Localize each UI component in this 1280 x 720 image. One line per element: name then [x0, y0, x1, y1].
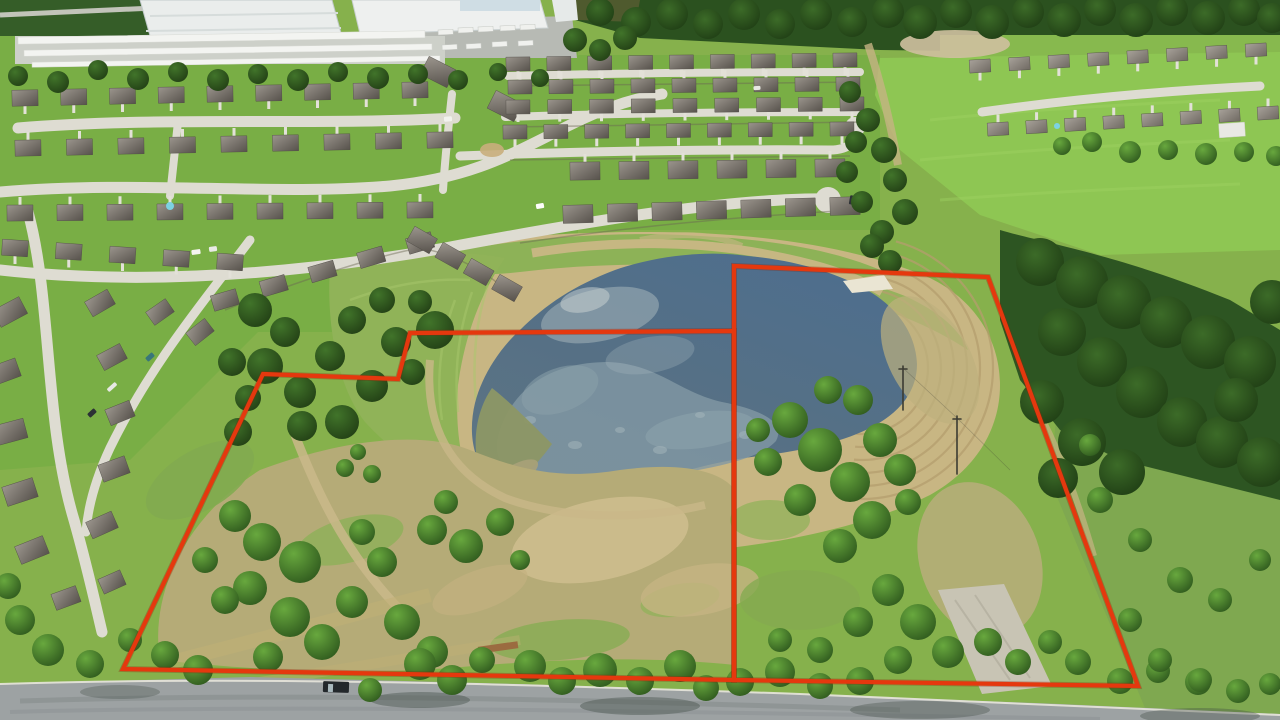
truck-trailer — [458, 27, 473, 33]
house-roof — [107, 204, 133, 220]
tree — [287, 69, 309, 91]
tree — [531, 69, 549, 87]
vehicle — [753, 86, 760, 90]
house-roof — [619, 161, 649, 179]
tree — [486, 508, 514, 536]
tree — [883, 168, 907, 192]
house-roof — [1219, 108, 1241, 122]
tree — [830, 462, 870, 502]
tree — [127, 68, 149, 90]
tree — [823, 529, 857, 563]
house-roof — [548, 100, 572, 114]
truck-trailer — [478, 26, 493, 32]
warehouse-blue-roof — [460, 0, 540, 11]
tree — [693, 9, 723, 39]
house-roof — [1048, 54, 1070, 68]
house-roof — [563, 205, 594, 224]
house-roof — [357, 202, 383, 218]
house-roof — [427, 132, 453, 149]
house-roof — [756, 98, 780, 112]
tree — [872, 574, 904, 606]
house-roof — [833, 53, 857, 67]
house-roof — [109, 88, 135, 105]
tree — [192, 547, 218, 573]
house-roof — [607, 203, 638, 222]
tree — [1099, 449, 1145, 495]
tree — [358, 678, 382, 702]
tree — [807, 637, 833, 663]
tree — [1208, 588, 1232, 612]
house-roof — [57, 205, 83, 221]
house-roof — [55, 243, 82, 261]
tree — [1148, 648, 1172, 672]
tree — [367, 547, 397, 577]
house-roof — [109, 246, 136, 264]
truck-trailer — [500, 25, 515, 31]
tree — [884, 646, 912, 674]
tree — [284, 376, 316, 408]
house-roof — [307, 203, 333, 219]
tree — [798, 428, 842, 472]
house-roof — [1245, 43, 1267, 57]
tree — [270, 317, 300, 347]
tree — [211, 586, 239, 614]
tree — [218, 348, 246, 376]
tree — [975, 5, 1009, 39]
tree — [417, 515, 447, 545]
tree — [88, 60, 108, 80]
tree — [363, 465, 381, 483]
house-roof — [707, 123, 731, 137]
tree — [583, 653, 617, 687]
tree — [408, 64, 428, 84]
tree — [746, 418, 770, 442]
house-roof — [503, 125, 527, 139]
house-roof — [1257, 106, 1279, 120]
tree — [1005, 649, 1031, 675]
tree — [1259, 673, 1280, 695]
house-roof — [324, 134, 350, 151]
tree — [860, 234, 884, 258]
house-roof — [304, 84, 330, 101]
tree — [932, 636, 964, 668]
tree — [270, 597, 310, 637]
aerial-scene-canvas — [0, 0, 1280, 720]
truck-trailer — [518, 40, 533, 46]
tree — [349, 519, 375, 545]
tree — [1047, 3, 1081, 37]
house-roof — [547, 56, 571, 70]
tree — [1188, 668, 1212, 692]
house-roof — [631, 99, 655, 113]
house-roof — [795, 77, 819, 91]
house-roof — [666, 123, 690, 137]
tree — [5, 605, 35, 635]
tree — [168, 62, 188, 82]
tree — [336, 459, 354, 477]
tree — [338, 306, 366, 334]
house-roof — [66, 139, 92, 156]
tree — [974, 628, 1002, 656]
house-roof — [751, 54, 775, 68]
house-roof — [1141, 113, 1163, 127]
tree — [563, 28, 587, 52]
house-roof — [570, 162, 600, 180]
tree — [489, 63, 507, 81]
house-roof — [1064, 117, 1086, 131]
house-roof — [748, 123, 772, 137]
tree — [8, 66, 28, 86]
house-roof — [589, 99, 613, 113]
house-roof — [696, 201, 727, 220]
house-roof — [969, 59, 991, 73]
house-roof — [118, 138, 144, 155]
tree — [843, 607, 873, 637]
house-roof — [668, 161, 698, 179]
tree — [510, 550, 530, 570]
tree — [76, 650, 104, 678]
tree — [843, 385, 873, 415]
aerial-property-photo — [0, 0, 1280, 720]
tree — [253, 642, 283, 672]
house-roof — [631, 79, 655, 93]
house-roof — [1127, 50, 1149, 64]
house-roof — [669, 55, 693, 69]
tree — [47, 71, 69, 93]
tree — [1038, 630, 1062, 654]
tree — [807, 673, 833, 699]
tree — [1167, 567, 1193, 593]
house-roof — [1009, 57, 1031, 71]
tree — [151, 641, 179, 669]
tree — [613, 26, 637, 50]
tree — [1065, 649, 1091, 675]
house-roof — [1026, 120, 1048, 134]
house-roof — [544, 125, 568, 139]
house-roof — [7, 205, 33, 221]
house-roof — [61, 89, 87, 106]
house-roof — [1087, 52, 1109, 66]
house-roof — [506, 57, 530, 71]
tree — [437, 665, 467, 695]
truck-trailer — [442, 44, 457, 50]
tree — [328, 62, 348, 82]
tree — [1038, 308, 1086, 356]
house-roof — [407, 202, 433, 218]
house-roof — [221, 136, 247, 153]
tree — [243, 523, 281, 561]
tree — [434, 490, 458, 514]
tree — [367, 67, 389, 89]
house-roof — [158, 87, 184, 104]
house-roof — [549, 80, 573, 94]
house-roof — [673, 98, 697, 112]
tree — [1226, 679, 1250, 703]
tree — [287, 411, 317, 441]
tree — [589, 39, 611, 61]
house-roof — [1180, 110, 1202, 124]
house-roof — [741, 199, 772, 218]
vehicle — [444, 116, 452, 122]
tree — [884, 454, 916, 486]
tree — [900, 604, 936, 640]
tree — [315, 341, 345, 371]
house-roof — [508, 80, 532, 94]
tree — [1079, 434, 1101, 456]
tree — [1119, 141, 1141, 163]
house-roof — [766, 159, 796, 177]
tree — [469, 647, 495, 673]
tree — [32, 634, 64, 666]
house-roof — [163, 250, 190, 268]
backyard-pool — [1054, 123, 1060, 129]
tree — [765, 9, 795, 39]
house-roof — [272, 135, 298, 152]
tree — [248, 64, 268, 84]
tree — [1119, 3, 1153, 37]
tree — [1053, 137, 1071, 155]
tree — [1249, 549, 1271, 571]
house-roof — [672, 78, 696, 92]
truck-trailer — [438, 29, 453, 35]
house-roof — [629, 55, 653, 69]
house-roof — [590, 79, 614, 93]
house-roof — [1206, 45, 1228, 59]
house-roof — [987, 122, 1009, 136]
house-roof — [256, 85, 282, 102]
tree — [784, 484, 816, 516]
tree — [754, 448, 782, 476]
tree — [1118, 608, 1142, 632]
vehicle — [323, 681, 349, 693]
house-roof — [652, 202, 683, 221]
tree — [851, 191, 873, 213]
tree — [1107, 668, 1133, 694]
truck-trailer — [466, 43, 481, 49]
tree — [1128, 528, 1152, 552]
house-roof — [717, 160, 747, 178]
house-roof — [585, 124, 609, 138]
tree — [768, 628, 792, 652]
tree — [384, 604, 420, 640]
backyard-pool — [166, 202, 174, 210]
house-roof — [375, 133, 401, 150]
house-roof — [626, 124, 650, 138]
truck-trailer — [492, 41, 507, 47]
tree — [772, 402, 808, 438]
tree — [304, 624, 340, 660]
house-roof — [1103, 115, 1125, 129]
tree — [336, 586, 368, 618]
house-roof — [789, 122, 813, 136]
house-roof — [169, 137, 195, 154]
east-green-patch-1 — [740, 570, 860, 630]
truck-windshield — [328, 684, 333, 692]
bare-dirt-patch — [480, 143, 504, 157]
tree — [408, 290, 432, 314]
tree — [1087, 487, 1113, 513]
tree — [219, 500, 251, 532]
tree — [448, 70, 468, 90]
tree — [836, 161, 858, 183]
house-roof — [402, 82, 428, 99]
tree — [369, 287, 395, 313]
warehouse-3 — [552, 0, 578, 22]
house-roof — [710, 54, 734, 68]
house-roof — [207, 203, 233, 219]
tree — [895, 489, 921, 515]
tree — [350, 444, 366, 460]
tree — [279, 541, 321, 583]
tree — [853, 501, 891, 539]
tree — [839, 81, 861, 103]
house-roof — [257, 203, 283, 219]
house-roof — [217, 253, 244, 271]
house-roof — [1219, 122, 1246, 138]
tree — [892, 199, 918, 225]
tree — [871, 137, 897, 163]
tree — [325, 405, 359, 439]
tree — [1082, 132, 1102, 152]
tree — [856, 108, 880, 132]
tree — [814, 376, 842, 404]
tree — [1214, 378, 1258, 422]
tree — [548, 667, 576, 695]
house-roof — [792, 53, 816, 67]
house-roof — [785, 198, 816, 217]
house-roof — [2, 239, 29, 257]
tree — [238, 293, 272, 327]
house-roof — [15, 140, 41, 157]
tree — [845, 131, 867, 153]
tree — [449, 529, 483, 563]
tree — [903, 5, 937, 39]
house-roof — [713, 78, 737, 92]
tree — [247, 348, 283, 384]
tree — [837, 7, 867, 37]
house-roof — [1166, 47, 1188, 61]
tree — [1234, 142, 1254, 162]
house-roof — [715, 98, 739, 112]
house-roof — [506, 100, 530, 114]
tree — [1195, 143, 1217, 165]
tree — [1191, 1, 1225, 35]
truck-trailer — [520, 24, 535, 30]
tree — [1158, 140, 1178, 160]
house-roof — [12, 90, 38, 107]
tree — [207, 69, 229, 91]
house-roof — [798, 97, 822, 111]
tree — [863, 423, 897, 457]
